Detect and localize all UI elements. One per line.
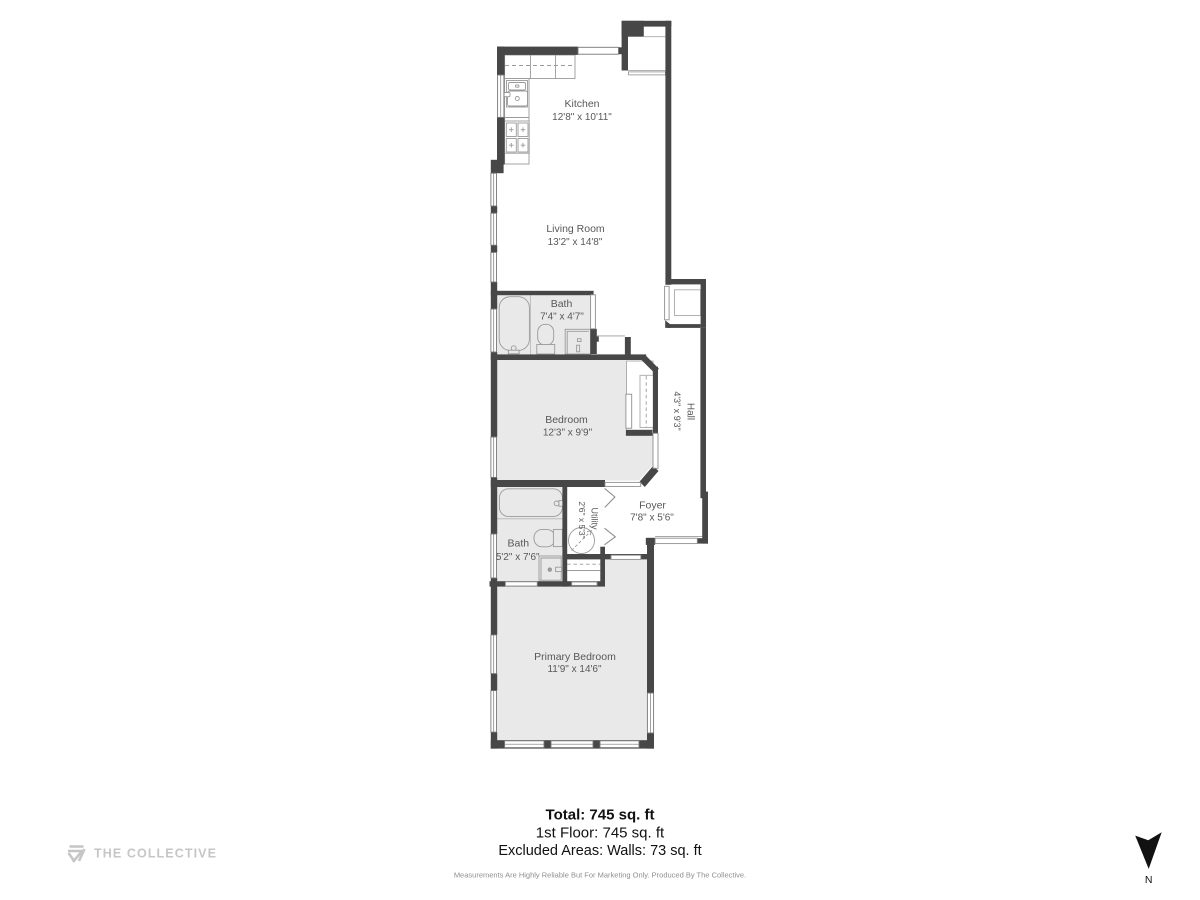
svg-text:Living Room: Living Room — [546, 223, 605, 235]
svg-text:Excluded Areas: Walls: 73 sq.: Excluded Areas: Walls: 73 sq. ft — [498, 843, 701, 859]
svg-text:Bedroom: Bedroom — [545, 414, 588, 426]
svg-text:Kitchen: Kitchen — [564, 98, 599, 110]
svg-text:Foyer: Foyer — [639, 500, 666, 512]
svg-text:THE COLLECTIVE: THE COLLECTIVE — [94, 847, 217, 861]
svg-text:13'2" x 14'8": 13'2" x 14'8" — [548, 237, 603, 248]
svg-text:Primary Bedroom: Primary Bedroom — [534, 651, 616, 663]
svg-text:1st Floor: 745 sq. ft: 1st Floor: 745 sq. ft — [536, 825, 665, 842]
svg-text:7'8" x 5'6": 7'8" x 5'6" — [630, 513, 674, 524]
svg-text:2'6" x 5'3": 2'6" x 5'3" — [577, 501, 587, 538]
svg-text:12'3" x 9'9": 12'3" x 9'9" — [543, 428, 593, 439]
svg-text:Measurements Are Highly Reliab: Measurements Are Highly Reliable But For… — [454, 871, 746, 880]
svg-text:11'9" x 14'6": 11'9" x 14'6" — [547, 664, 602, 675]
svg-text:Total: 745 sq. ft: Total: 745 sq. ft — [546, 807, 655, 824]
svg-text:N: N — [1145, 874, 1153, 886]
svg-text:5'2" x 7'6": 5'2" x 7'6" — [496, 552, 540, 563]
svg-text:12'8" x 10'11": 12'8" x 10'11" — [552, 112, 612, 123]
svg-text:4'3" x 9'3": 4'3" x 9'3" — [672, 391, 682, 430]
svg-text:Bath: Bath — [507, 538, 529, 550]
svg-text:Hall: Hall — [685, 403, 696, 420]
svg-text:Utility: Utility — [590, 508, 600, 530]
svg-text:7'4" x 4'7": 7'4" x 4'7" — [540, 312, 584, 323]
svg-text:Bath: Bath — [551, 298, 573, 310]
